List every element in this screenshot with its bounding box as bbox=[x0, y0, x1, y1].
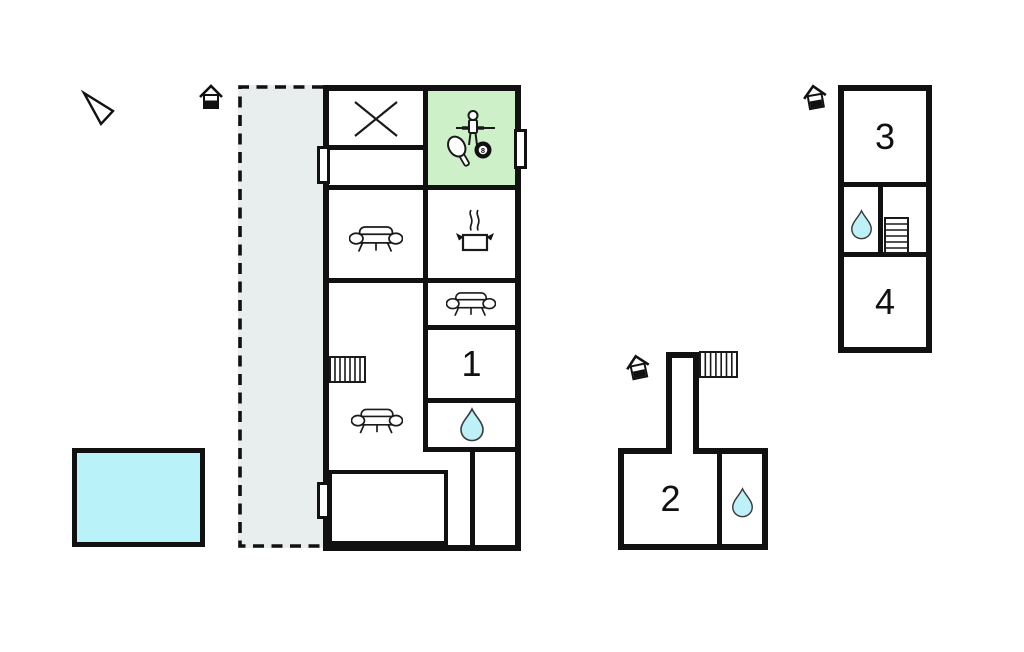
entrance-icon bbox=[198, 84, 224, 110]
floor-plan-canvas: 8 bbox=[0, 0, 1024, 652]
stairs-icon bbox=[884, 217, 909, 254]
sofa-icon bbox=[349, 225, 403, 255]
room-2-label: 2 bbox=[624, 454, 717, 544]
window bbox=[317, 146, 330, 184]
wall bbox=[878, 187, 883, 252]
terrace-dashed-border bbox=[238, 85, 323, 548]
entrance-icon bbox=[800, 82, 830, 112]
annex-corridor bbox=[672, 358, 693, 454]
sofa-icon bbox=[351, 407, 403, 437]
water-drop-icon bbox=[459, 407, 485, 442]
north-arrow-icon bbox=[78, 88, 118, 128]
room-3-label: 3 bbox=[844, 91, 926, 182]
wall bbox=[666, 352, 672, 454]
pool bbox=[72, 448, 205, 547]
wall bbox=[844, 182, 926, 187]
billiard-ball-number: 8 bbox=[481, 146, 485, 155]
sofa-icon bbox=[446, 291, 496, 319]
room-4-label: 4 bbox=[844, 257, 926, 347]
wall bbox=[423, 447, 515, 452]
water-drop-icon bbox=[850, 209, 873, 240]
cross-icon bbox=[352, 99, 400, 139]
window bbox=[317, 482, 330, 519]
terrace bbox=[238, 85, 323, 548]
stairs-icon bbox=[699, 351, 738, 378]
bedroom bbox=[328, 470, 448, 545]
stairs-icon bbox=[329, 356, 366, 383]
water-drop-icon bbox=[731, 487, 754, 518]
room-1-label: 1 bbox=[428, 330, 515, 398]
window bbox=[514, 129, 527, 169]
wall bbox=[470, 452, 475, 545]
wall bbox=[428, 398, 515, 403]
wall bbox=[666, 352, 699, 358]
wall bbox=[329, 278, 515, 283]
cooking-pot-icon bbox=[454, 206, 496, 254]
wall bbox=[717, 454, 722, 544]
entrance-icon bbox=[623, 352, 654, 383]
billiard-ball-icon: 8 bbox=[475, 142, 492, 159]
game-icons-group: 8 bbox=[446, 108, 496, 170]
wall bbox=[329, 185, 515, 190]
wall bbox=[329, 145, 425, 150]
